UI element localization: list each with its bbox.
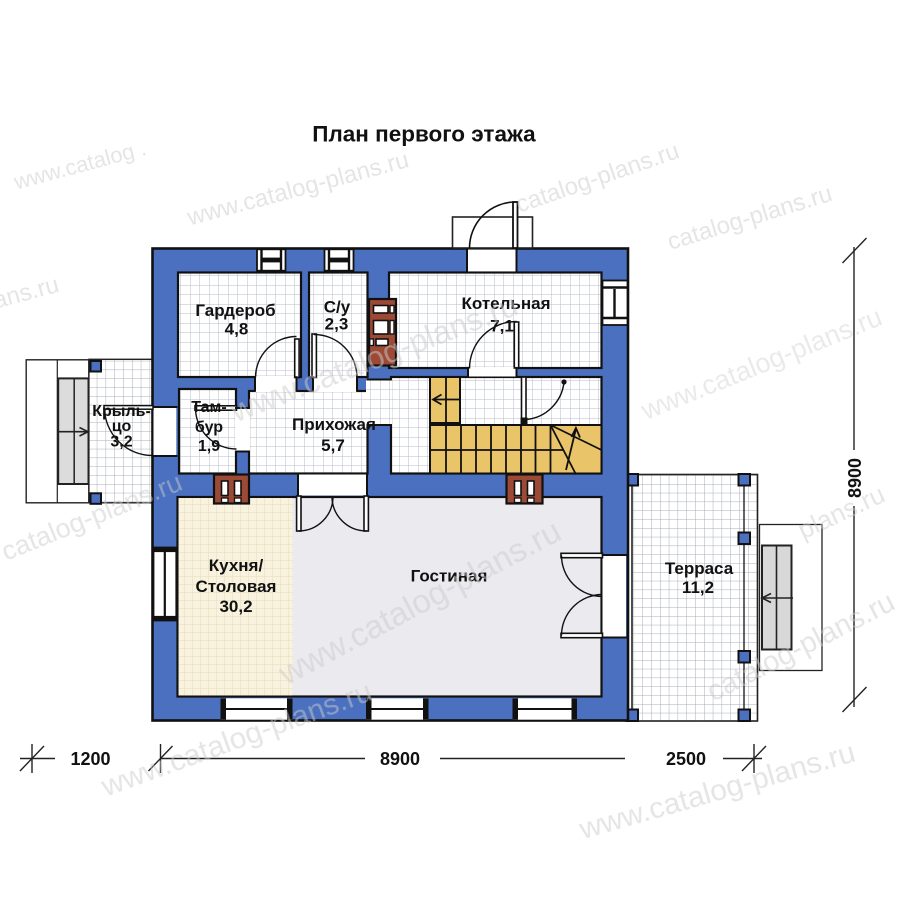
svg-text:Столовая: Столовая	[196, 577, 277, 596]
svg-text:2,3: 2,3	[325, 315, 349, 334]
svg-text:План первого этажа: План первого этажа	[312, 122, 536, 147]
svg-text:4,8: 4,8	[225, 320, 249, 339]
svg-text:2500: 2500	[666, 749, 706, 769]
svg-text:11,2: 11,2	[682, 578, 714, 597]
svg-text:1,9: 1,9	[198, 438, 220, 455]
svg-text:Прихожая: Прихожая	[292, 415, 376, 434]
svg-text:бур: бур	[195, 419, 223, 436]
svg-text:Там-: Там-	[191, 399, 226, 416]
svg-text:Терраса: Терраса	[665, 559, 734, 578]
svg-text:30,2: 30,2	[219, 597, 252, 616]
svg-text:8900: 8900	[380, 749, 420, 769]
svg-text:Кухня/: Кухня/	[209, 556, 264, 575]
svg-text:1200: 1200	[70, 749, 110, 769]
svg-text:5,7: 5,7	[321, 436, 345, 455]
svg-text:3,2: 3,2	[110, 434, 132, 451]
svg-text:цо: цо	[112, 418, 132, 435]
svg-text:Гардероб: Гардероб	[195, 301, 275, 320]
